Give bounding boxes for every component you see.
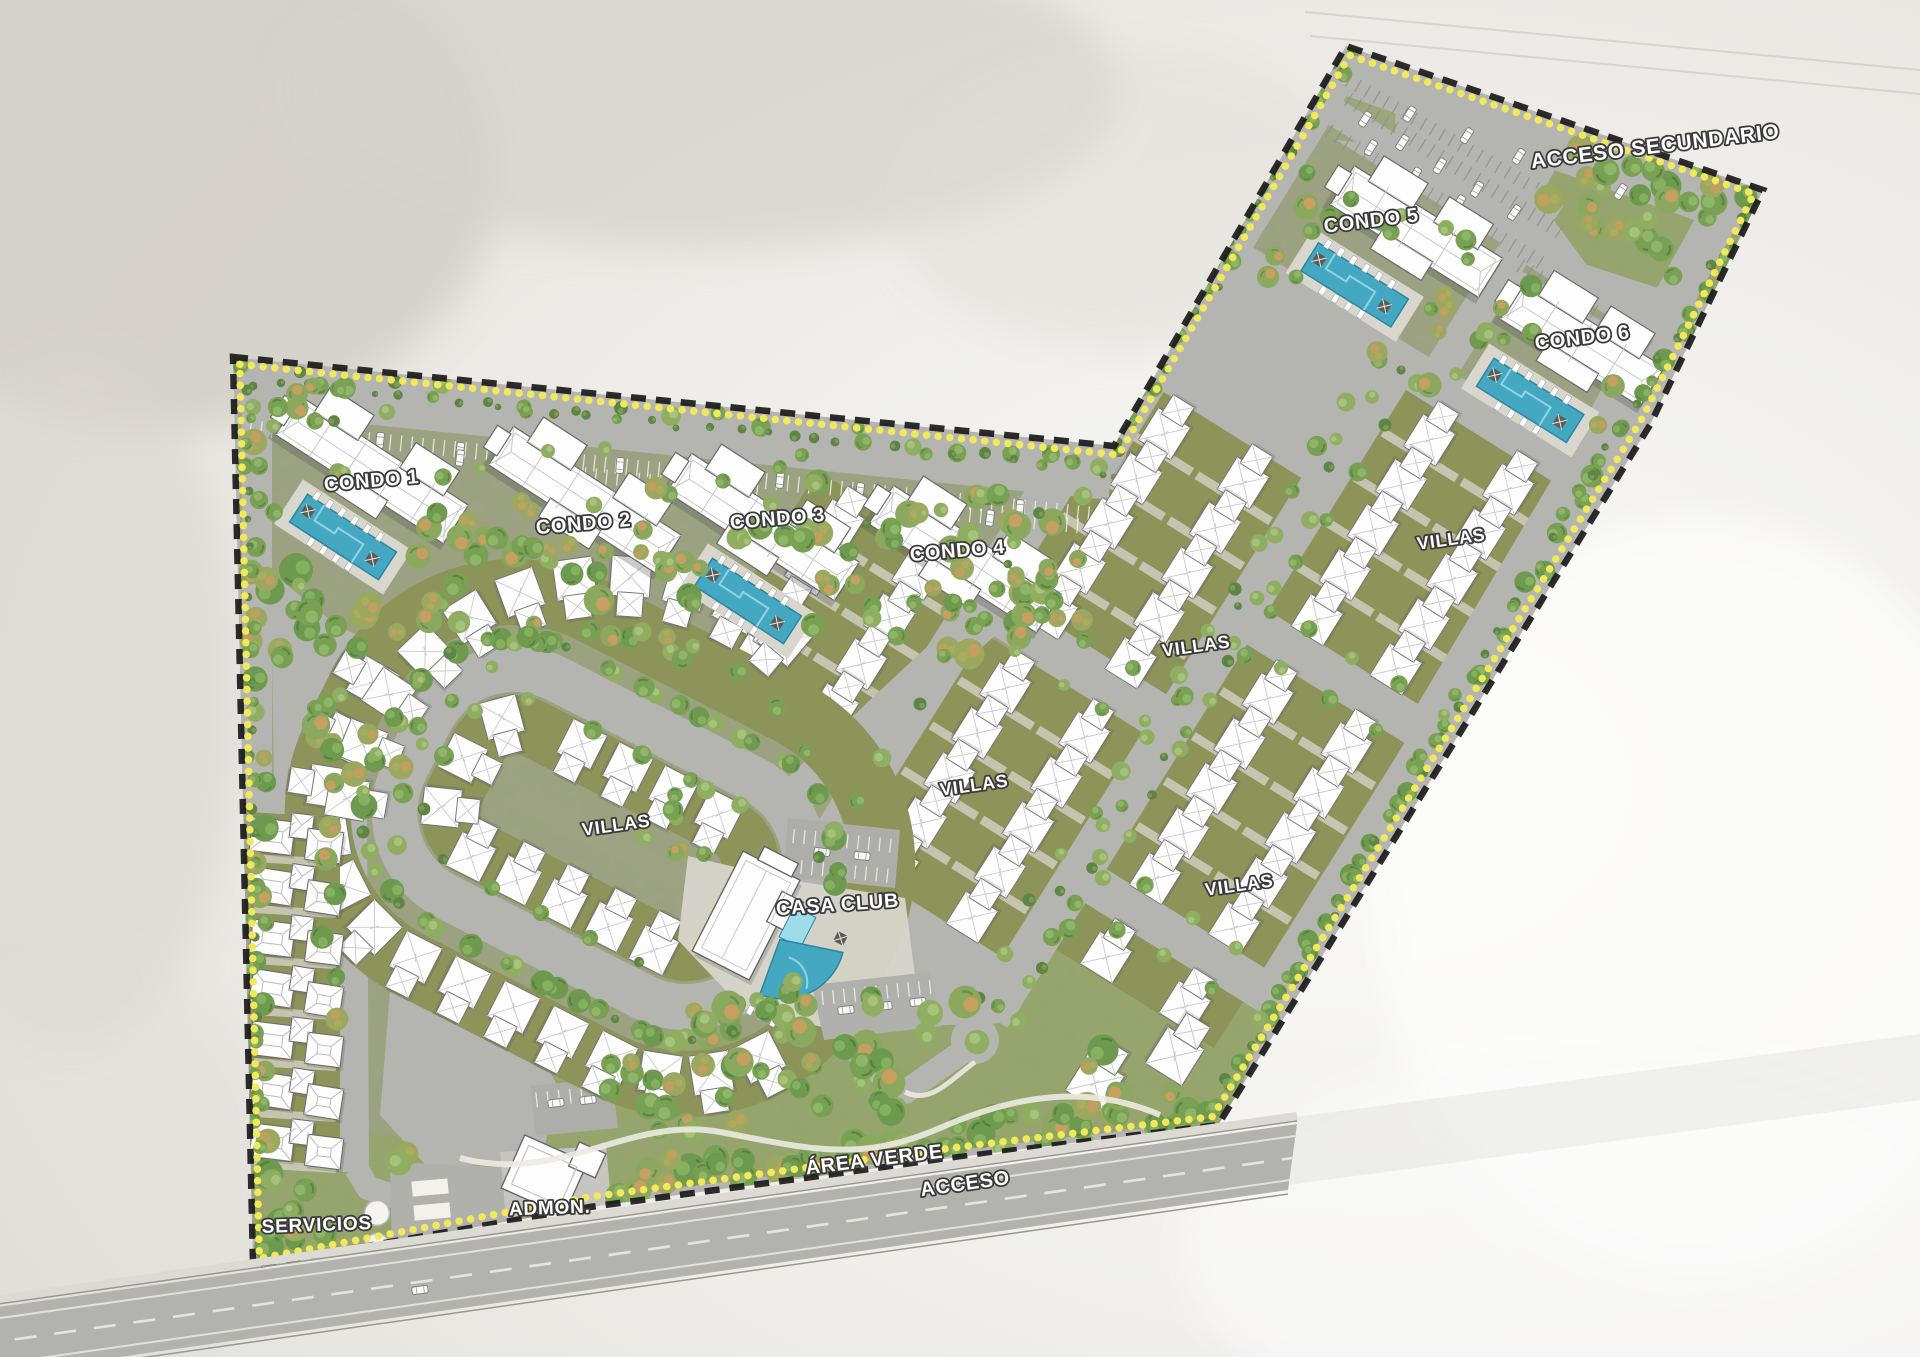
svg-text:SERVICIOS: SERVICIOS	[261, 1213, 372, 1238]
svg-text:ADMON.: ADMON.	[509, 1197, 592, 1221]
